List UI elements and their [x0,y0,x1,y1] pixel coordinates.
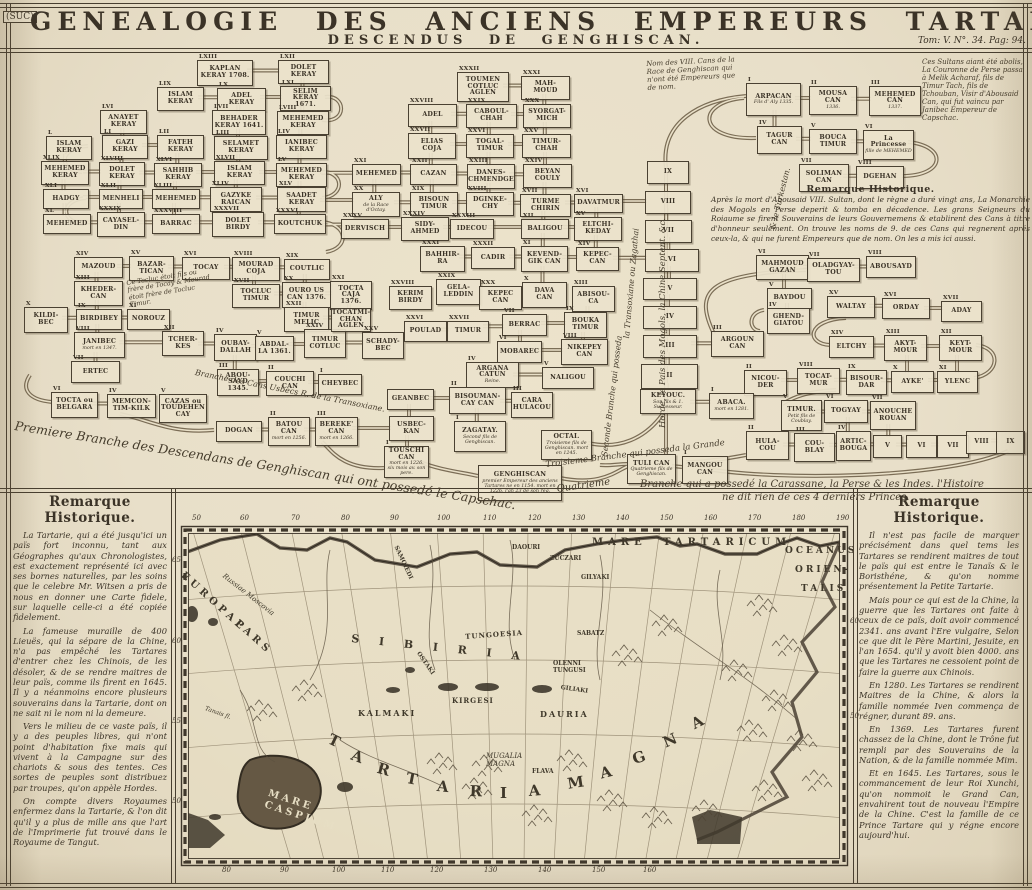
genealogy-box-name: TIMUR [455,328,481,335]
map-label: ZUCZARI [550,556,581,563]
genealogy-box-name: ABOUSAYD [870,264,912,271]
genealogy-box-numeral: IV [769,302,777,308]
genealogy-box-numeral: XXXV [343,213,362,219]
genealogy-box-numeral: V [783,394,788,400]
map-longitude-tick: 190 [836,514,849,522]
genealogy-box-numeral: XXXIV [403,211,425,217]
genealogy-box-numeral: XXIX [438,273,455,279]
map-longitude-tick: 50 [192,514,201,522]
genealogy-box-numeral: XVI [184,251,197,257]
genealogy-box-numeral: X [26,301,31,307]
genealogy-box-name: V [885,443,890,450]
genealogy-box-name: OUBAY- DALLAH [220,341,251,354]
genealogy-box-numeral: XLIV [212,181,229,187]
map-longitude-tick: 80 [222,866,231,874]
genealogy-box-numeral: XXVI [468,128,485,134]
rule-left-column [171,489,176,884]
genealogy-box: ICHEYBEC [318,374,362,395]
genealogy-box-numeral: III [219,363,228,369]
tome-page-reference: Tom: V. N°. 34. Pag: 94. [918,36,1026,46]
genealogy-box-name: DAVA CAN [535,288,555,301]
genealogy-box: XXIXGELA- LEDDIN [436,279,481,305]
genealogy-box-note: mort en 1256. [272,436,306,441]
genealogy-box-numeral: XXXII [459,66,479,72]
map-label: TALIS [801,584,846,594]
genealogy-box-numeral: VI [758,249,766,255]
genealogy-box-name: DOGAN [225,428,253,435]
map-longitude-tick: 110 [483,514,496,522]
genealogy-box-name: MOURAD COJA [239,262,274,275]
genealogy-box-numeral: XXI [332,275,345,281]
branch-annotation: Nom des VIII. Cans de la Race de Genghis… [646,55,740,92]
genealogy-box-note: mort en 1266. [319,436,353,441]
genealogy-box: IXBISOUR- DAR [846,370,887,395]
genealogy-box: VIMOBAREC [497,341,542,363]
genealogy-box-numeral: VIII [563,333,577,339]
genealogy-box-note: Second fils de Genghiscan. [456,435,504,445]
genealogy-box-name: HULA- COU [755,439,779,452]
genealogy-box-name: ADAY [951,308,971,315]
genealogy-box: IX [647,161,689,184]
map-longitude-tick: 90 [280,866,289,874]
genealogy-box-name: BEHADER KERAY 1641. [215,116,264,129]
genealogy-box-numeral: XV [829,290,839,296]
map-longitude-tick: 100 [437,514,450,522]
genealogy-box-numeral: LIX [159,81,171,87]
genealogy-box-numeral: XXVIII [410,98,433,104]
genealogy-box-numeral: XVIII [468,186,487,192]
genealogy-box: VIII [966,431,997,454]
genealogy-box: XXVTIMUR- CHAH [522,134,571,158]
genealogy-box-numeral: II [811,80,817,86]
genealogy-box-numeral: XIX [412,186,425,192]
genealogy-box-name: KEYT- MOUR [949,341,973,354]
branch-annotation: Horde, le Pais des Mogols, la Chine Sept… [658,218,668,428]
genealogy-box: XXXVIKOUTCHUK [274,214,326,234]
genealogy-box: XIITCHER- KES [162,331,204,356]
map-label: KIRGESI [452,697,494,705]
genealogy-box-name: ANOUCHE ROUAN [874,409,913,422]
genealogy-box-numeral: XXXIX [99,206,121,212]
genealogy-box-note: mort en 1226. six mois av. son pere. [386,461,427,476]
genealogy-box-numeral: XXXI [523,70,540,76]
genealogy-box: XXIVTIMUR COTLUC [304,329,346,358]
genealogy-box-numeral: XIII [574,280,588,286]
genealogy-box-name: TOCAT- MUR [805,374,832,387]
genealogy-box: IIICARA HULACOU [511,392,553,418]
genealogy-box: VIIINIKEPEY CAN [561,339,608,365]
remark-paragraph: On compte divers Royaumes enfermez dans … [13,796,167,847]
genealogy-box-name: ELTCHI- KEDAY [582,222,613,235]
genealogy-box-numeral: LV [278,157,287,163]
right-remark-column: Remarque Historique. Il n'est pas facile… [859,494,1019,843]
genealogy-box-name: VII [947,443,958,450]
tartaria-map [180,510,852,882]
map-label: MUGALIA MAGNA [486,752,522,768]
map-longitude-tick: 90 [390,514,399,522]
rule-under-title [0,48,1032,53]
genealogy-box-numeral: IV [109,388,117,394]
map-region-letter: A [528,781,541,800]
genealogy-box-numeral: II [268,365,274,371]
genealogy-box: LIXISLAM KERAY [157,87,204,111]
genealogy-box: XXXVIIIBARRAC [152,214,200,234]
remark-paragraph: Et en 1645. Les Tartares, sous le comman… [859,768,1019,840]
genealogy-box-name: BEREKE' CAN [320,422,354,435]
genealogy-box: XXXSYORGAT- MICH [523,104,571,128]
genealogy-box-name: AKYT- MOUR [894,341,918,354]
genealogy-box-numeral: VII [801,158,812,164]
genealogy-box: VII [645,220,692,243]
map-label: DAURIA [540,710,589,719]
genealogy-box-name: GELA- LEDDIN [443,285,473,298]
genealogy-box-name: BOUCA TIMUR [819,135,846,148]
genealogy-box-numeral: XLII [101,183,116,189]
genealogy-box-numeral: XXVII [449,315,469,321]
genealogy-box-numeral: LIII [216,130,229,136]
genealogy-box-numeral: XIII [76,275,90,281]
map-longitude-tick: 160 [643,866,656,874]
genealogy-box: V [873,435,902,458]
genealogy-box-name: BARRAC [160,221,192,228]
genealogy-box-name: ANAYET KERAY [108,115,138,128]
rule-bottom [0,883,1032,888]
genealogy-box-numeral: XXIV [306,323,323,329]
genealogy-box-name: MEHEMED [155,196,196,203]
genealogy-box: III [643,335,697,358]
genealogy-box: VIIITOCAT- MUR [797,368,840,394]
genealogy-box: VIIERTEC [71,361,120,383]
genealogy-box-name: TOGAL- TIMUR [476,139,505,152]
map-longitude-tick: 150 [660,514,673,522]
genealogy-box: XLIXMEHEMED KERAY [41,161,89,185]
genealogy-box: VIIBERRAC [502,314,547,336]
genealogy-box-name: BISOUN TIMUR [419,197,450,210]
genealogy-box-name: TIMUR- CHAH [532,139,561,152]
genealogy-box: XXVITOGAL- TIMUR [466,134,514,158]
genealogy-box-numeral: XIX [286,253,299,259]
genealogy-box: XXVIIIADEL [408,104,457,127]
genealogy-box-numeral: XLIX [43,155,60,161]
genealogy-box-note: Petit fils de Coublay. [783,414,820,424]
genealogy-box: XIIIABISOU- CA [572,286,615,312]
genealogy-box-name: CHEYBEC [322,381,359,388]
map-longitude-tick: 80 [341,514,350,522]
genealogy-box-name: FATEH KERAY [168,140,194,153]
genealogy-box-note: Troisieme fils de Genghiscan. mort en 12… [543,441,590,456]
genealogy-box-numeral: XLV [279,181,292,187]
genealogy-box-numeral: XXXIII [452,213,475,219]
genealogy-box-numeral: V [544,361,549,367]
genealogy-box-name: BIRDIBEY [80,316,118,323]
genealogy-box-name: ARGANA CATUN [476,366,508,379]
genealogy-box: VIIOLADGYAY- TOU [807,258,860,282]
genealogy-box-numeral: XVII [234,278,250,284]
genealogy-box: XIIKEYT- MOUR [939,335,982,361]
genealogy-box: VI [906,435,937,458]
genealogy-box-numeral: XVII [522,188,538,194]
genealogy-box: XLIIIMEHEMED [152,189,200,209]
genealogy-box-name: SCHADY- BEC [366,339,400,352]
genealogy-box-numeral: I [456,415,459,421]
left-remark-column: Remarque Historique. La Tartarie, qui a … [13,494,167,850]
genealogy-box-numeral: XLVI [156,157,172,163]
genealogy-box-numeral: XXXVI [276,208,298,214]
genealogy-box: IIIARGOUN CAN [711,331,764,357]
genealogy-box-note: Son fils & 1. Successeur. [642,400,694,410]
genealogy-box: XXVIITIMUR [447,321,489,342]
genealogy-box-numeral: XVIII [234,251,253,257]
genealogy-box-name: BAYDOU [773,295,805,302]
genealogy-box-numeral: XIV [831,330,844,336]
genealogy-box-name: V [667,286,672,293]
genealogy-box: VABDAL- LA 1361. [255,336,294,361]
genealogy-box-name: NOROUZ [132,316,165,323]
genealogy-box-name: MANGOU CAN [687,463,722,476]
genealogy-box: LIIFATEH KERAY [157,135,204,159]
genealogy-box-name: SIDY- AHMED [410,222,439,235]
genealogy-box-name: TCHER- KES [168,337,198,350]
genealogy-box-name: KHEDER- CAN [81,287,117,300]
genealogy-box: XIKEVEND- GIK CAN [521,246,568,272]
remark-center-text: Après la mort d'Abousaid VIII. Sultan, d… [711,195,1030,243]
genealogy-box-name: SYORGAT- MICH [528,109,566,122]
map-longitude-tick: 150 [592,866,605,874]
remark-paragraph: La fameuse muraille de 400 Lieuës, qui l… [13,626,167,719]
genealogy-box: XXXVIIDOLET BIRDY [212,212,264,237]
genealogy-box: VIMAHMOUD GAZAN [756,255,809,280]
genealogy-box-numeral: I [748,77,751,83]
genealogy-box-name: MAHMOUD GAZAN [761,261,804,274]
map-label: FLAVA [532,769,554,776]
genealogy-box-name: CABOUL- CHAH [474,109,509,122]
genealogy-box-name: ADEL [422,112,442,119]
rule-under-tree [0,488,1032,493]
genealogy-box: IIIBEREKE' CANmort en 1266. [315,417,358,446]
genealogy-box: XXVIIELIAS COJA [408,133,456,159]
remark-paragraph: En 1369. Les Tartares furent chassez de … [859,724,1019,765]
page-title: GENEALOGIE DES ANCIENS EMPEREURS TARTARE… [30,7,1002,36]
map-label: SABATZ [577,631,604,638]
genealogy-box: XLMEHEMED [43,214,91,234]
remark-center-title: Remarque Historique. [711,184,1030,195]
genealogy-box: IVMEMCON- TIM-KILK [107,394,156,418]
genealogy-box: XIVKEPEC- CAN [576,247,619,271]
genealogy-box: XKILDI- BEC [24,307,68,333]
genealogy-box-name: MEHEMED [356,171,397,178]
genealogy-box-name: DGEHAN [863,174,896,181]
genealogy-box: VII [937,435,969,458]
genealogy-box: XXXIICADIR [471,247,515,269]
genealogy-box-name: CADIR [481,255,506,262]
genealogy-box-name: MEHEMED [46,221,87,228]
genealogy-box-numeral: X [893,365,898,371]
genealogy-box-name: TOCTA ou BELGARA [56,398,93,411]
genealogy-box-name: BALIGOU [527,226,562,233]
genealogy-box: XXVSCHADY- BEC [362,332,404,359]
map-longitude-tick: 60 [240,514,249,522]
genealogy-box: VCAZAS ou TOUDEHEN CAY [159,394,207,423]
genealogy-box-name: KAPLAN KERAY 1708. [201,66,250,79]
genealogy-box: XXXVDERVISCH [341,219,389,239]
genealogy-box: XXVIPOULAD [404,321,447,342]
map-label: TARTARICUM [663,537,791,549]
genealogy-box: VITOCTA ou BELGARA [51,392,98,418]
genealogy-box-name: OLADGYAY- TOU [812,263,855,276]
map-longitude-tick: 140 [538,866,551,874]
genealogy-box-numeral: II [748,425,754,431]
genealogy-box-numeral: XVII [943,295,959,301]
genealogy-box-numeral: V [257,330,262,336]
genealogy-box: IVTAGUR CAN [757,126,802,154]
map-region-letter: A [436,777,449,796]
right-remark-paragraphs: Il n'est pas facile de marquer préciséme… [859,530,1019,840]
genealogy-box-name: GEANBEC [392,396,429,403]
genealogy-box-name: ARGOUN CAN [721,337,754,350]
genealogy-box-numeral: VIII [858,160,872,166]
genealogy-box-numeral: III [871,80,880,86]
genealogy-box-name: KERIM BIRDY [397,291,423,304]
genealogy-box-name: MOBAREC [500,349,539,356]
genealogy-box-name: POULAD [410,328,442,335]
genealogy-box-note: 1336. [826,105,840,110]
map-label: ORIEN- [795,565,851,575]
genealogy-box-name: ISLAM KERAY [168,92,194,105]
genealogy-box-numeral: XIV [76,251,89,257]
genealogy-box-numeral: VII [73,355,84,361]
genealogy-box: VILa Princessefille de MEHEMED [863,130,914,160]
rule-right-edge [1023,3,1028,886]
genealogy-box-numeral: VI [826,394,834,400]
genealogy-box: V [643,278,697,300]
genealogy-box: IIHULA- COU [746,431,789,460]
genealogy-box: VIII [645,191,691,214]
map-longitude-tick: 120 [528,514,541,522]
map-region-letter: R [469,782,482,800]
genealogy-box: VIIIABOUSAYD [866,256,916,278]
genealogy-box-name: VI [668,257,676,264]
genealogy-box: XXXIIIIDECOU [450,219,494,239]
genealogy-box: XXXIVSIDY- AHMED [401,217,449,241]
genealogy-box-name: KEVEND- GIK CAN [527,252,562,265]
genealogy-box: XVIORDAY [882,298,930,319]
genealogy-box-name: NALIGOU [550,375,586,382]
genealogy-box-numeral: XXX [525,98,539,104]
genealogy-box-numeral: XXV [364,326,378,332]
genealogy-box-name: TOCTA CAJA 1376. [332,286,370,306]
genealogy-box-name: ARTIC- BOUGA [840,439,868,452]
genealogy-box-numeral: LI [104,129,111,135]
genealogy-box-numeral: L [48,130,52,136]
genealogy-box-name: COUTLIC [290,266,324,273]
genealogy-box-numeral: III [713,325,722,331]
genealogy-box: II [641,364,698,389]
genealogy-box-numeral: IX [848,364,856,370]
genealogy-box-name: MEHEMED KERAY [44,166,85,179]
genealogy-box-name: KEPEC CAN [488,291,514,304]
genealogy-box-name: TAGUR CAN [766,133,792,146]
left-remark-paragraphs: La Tartarie, qui a été jusqu'ici un païs… [13,530,167,847]
genealogy-box-numeral: XVI [884,292,897,298]
genealogy-box-numeral: LXIII [199,54,217,60]
map-region-letter: M [566,772,585,792]
genealogy-box-name: MAH- MOUD [533,81,557,94]
genealogy-box-name: BEYAN COULY [535,169,561,182]
genealogy-box: ITOUSCHI CANmort en 1226. six mois av. s… [384,446,429,478]
genealogy-box-name: IANIBEC KERAY [285,140,318,153]
genealogy-box-numeral: V [161,388,166,394]
genealogy-box: VIIANOUCHE ROUAN [870,401,916,430]
genealogy-box-name: IX [1006,439,1014,446]
genealogy-box-name: BOUKA TIMUR [572,318,600,331]
genealogy-box-name: CARA HULACOU [513,398,551,411]
genealogy-box: IARPACANFils d' Aly 1335. [746,83,801,116]
genealogy-box-numeral: LX [219,82,228,88]
genealogy-box-name: MOUSA CAN [819,91,847,104]
genealogy-box-name: ELIAS COJA [421,139,444,152]
genealogy-box-note: mort en 1347. [82,346,116,351]
remark-paragraph: La Tartarie, qui a été jusqu'ici un païs… [13,530,167,623]
genealogy-box-name: MAZOUD [81,264,115,271]
genealogy-box: IABACA.mort en 1281. [709,393,754,419]
genealogy-box-name: DOLET KERAY [291,65,317,78]
genealogy-box-name: VIII [974,439,989,446]
genealogy-box-name: DERVISCH [345,226,385,233]
genealogy-box-name: ISLAM KERAY [227,166,253,179]
map-longitude-tick: 130 [572,514,585,522]
genealogy-box-numeral: IV [838,425,846,431]
genealogy-box-name: DGINKE- CHY [473,197,507,210]
genealogy-box: IVOUBAY- DALLAH [214,334,257,361]
genealogy-box-numeral: XXXVII [214,206,239,212]
genealogy-box-name: USBEC- KAN [397,422,426,435]
map-label: KALMAKI [358,709,416,718]
genealogy-box-numeral: XL [45,208,54,214]
genealogy-box-numeral: V [769,282,774,288]
genealogy-box-name: CAYASEL- DIN [103,218,140,231]
genealogy-box: USBEC- KAN [389,416,434,441]
genealogy-box-numeral: LVIII [279,105,297,111]
genealogy-box: IX [996,431,1025,454]
genealogy-box: IIICOU- BLAY [794,433,835,462]
genealogy-box-name: CAZAS ou TOUDEHEN CAY [161,399,205,419]
genealogy-box-name: ABDAL- LA 1361. [258,342,291,355]
genealogy-box: DOGAN [216,421,262,442]
genealogy-box-numeral: LXI [282,80,294,86]
genealogy-box-numeral: IV [468,356,476,362]
remark-paragraph: Vers le milieu de ce vaste païs, il y a … [13,721,167,793]
map-longitude-tick: 110 [381,866,394,874]
genealogy-box-numeral: VI [53,386,61,392]
genealogy-box-numeral: XXIII [469,158,488,164]
genealogy-box-numeral: VIII [76,326,90,332]
genealogy-box-numeral: XII [523,213,534,219]
genealogy-box-numeral: VI [865,124,873,130]
genealogy-box-name: KILDI- BEC [33,313,58,326]
genealogy-box: VBOUCA TIMUR [809,129,857,154]
genealogy-box-numeral: XXVI [406,315,423,321]
genealogy-box-name: IX [664,169,672,176]
genealogy-box-numeral: VI [499,335,507,341]
genealogy-box-numeral: VII [809,252,820,258]
genealogy-box-numeral: XLVIII [101,156,123,162]
genealogy-box: XIYLENC [937,371,978,393]
genealogy-box-numeral: XXVIII [391,280,414,286]
genealogy-box-name: CAZAN [420,171,446,178]
genealogy-box: XXITOCTA CAJA 1376. [330,281,372,310]
genealogy-box-name: BISOUMAN- CAY CAN [455,394,501,407]
genealogy-box-numeral: LVII [214,104,229,110]
